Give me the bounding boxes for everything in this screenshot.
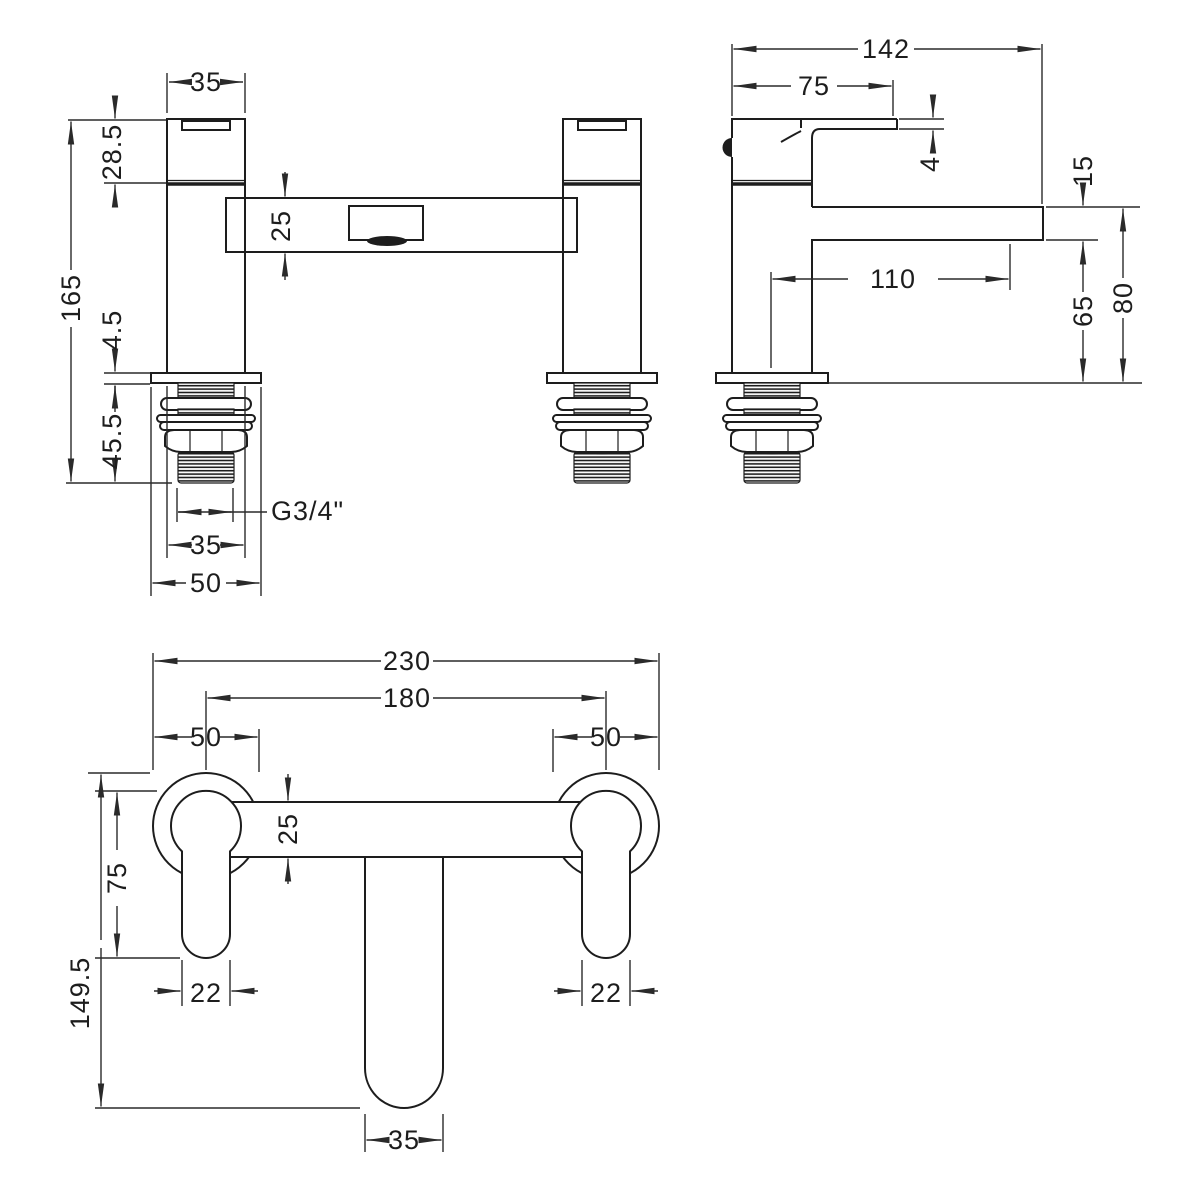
dim-plan-body-width: 25 [273, 813, 303, 845]
dim-side-spout-thickness: 15 [1068, 155, 1098, 187]
dim-plan-base-right: 50 [590, 722, 622, 752]
threaded-tail-left [157, 383, 255, 483]
dim-side-overall-depth: 142 [862, 34, 910, 64]
dim-front-base-width: 50 [190, 568, 222, 598]
dim-plan-handle-length: 75 [102, 862, 132, 894]
dim-plan-overall-width: 230 [383, 646, 431, 676]
side-dimension-lines [732, 44, 1140, 382]
front-view: 35 28.5 165 25 4.5 45.5 G3/4" 35 50 [56, 67, 657, 598]
right-handle-plan [571, 791, 641, 958]
front-dimension-labels: 35 28.5 165 25 4.5 45.5 G3/4" 35 50 [56, 67, 344, 598]
threaded-tail-right [553, 383, 651, 483]
side-view: 142 75 4 15 110 65 80 [716, 34, 1142, 483]
dim-side-spout-clearance: 65 [1068, 295, 1098, 327]
dim-plan-hole-centres: 180 [383, 683, 431, 713]
left-handle-plan [171, 791, 241, 958]
dim-plan-overall-projection: 149.5 [65, 957, 95, 1030]
dim-front-tail-length: 45.5 [97, 413, 127, 470]
plan-spout [365, 857, 443, 1108]
side-profile [716, 119, 1043, 383]
plan-dimension-lines [88, 653, 659, 1152]
left-handle-lever-top [182, 121, 230, 130]
dim-plan-handle-width-left: 22 [190, 978, 222, 1008]
dim-front-body-depth: 25 [266, 210, 296, 242]
dim-side-spout-reach: 110 [870, 264, 916, 294]
right-handle-lever-top [578, 121, 626, 130]
left-base-flange [151, 373, 261, 383]
dim-plan-handle-width-right: 22 [590, 978, 622, 1008]
dim-front-deck-gap: 4.5 [97, 310, 127, 351]
dim-front-thread-width: 35 [190, 530, 222, 560]
plan-view: 230 180 50 50 25 75 149.5 22 22 35 [65, 646, 659, 1155]
dim-plan-base-left: 50 [190, 722, 222, 752]
bath-tap-technical-drawing: 35 28.5 165 25 4.5 45.5 G3/4" 35 50 [0, 0, 1200, 1200]
indicator-button [723, 138, 732, 157]
dim-front-thread-spec: G3/4" [271, 496, 344, 526]
dim-plan-spout-width: 35 [388, 1125, 420, 1155]
right-base-flange [547, 373, 657, 383]
plan-dimension-labels: 230 180 50 50 25 75 149.5 22 22 35 [65, 646, 622, 1155]
dim-front-overall-height: 165 [56, 274, 86, 322]
spout-arm [812, 207, 1043, 373]
dim-side-spout-height: 80 [1108, 282, 1138, 314]
dim-front-handle-height: 28.5 [97, 124, 127, 181]
technical-drawing-page: 35 28.5 165 25 4.5 45.5 G3/4" 35 50 [0, 0, 1200, 1200]
side-base-flange [716, 373, 828, 383]
threaded-tail-side [723, 383, 821, 483]
side-dimension-labels: 142 75 4 15 110 65 80 [798, 34, 1138, 327]
left-pillar [151, 119, 261, 383]
dim-side-handle-reach: 75 [798, 71, 830, 101]
dim-front-top-width: 35 [190, 67, 222, 97]
spout-outlet [367, 236, 407, 246]
dim-side-handle-thickness: 4 [915, 156, 945, 172]
right-pillar [547, 119, 657, 383]
spout-face [349, 206, 423, 240]
